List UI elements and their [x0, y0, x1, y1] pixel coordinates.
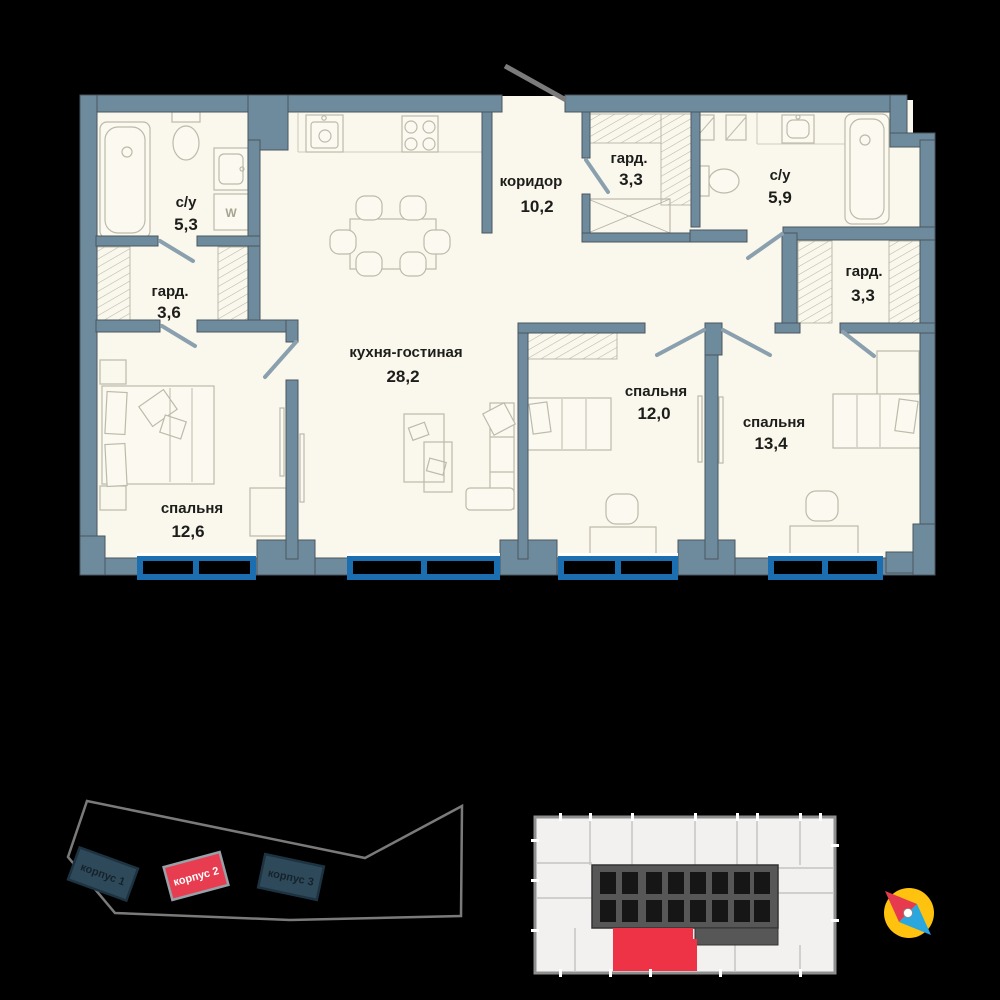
compass-icon	[884, 888, 934, 938]
room-area-kitchen-living: 28,2	[386, 367, 419, 386]
building-korpus-1: корпус 1	[68, 847, 138, 900]
building-korpus-2-highlighted: корпус 2	[164, 852, 229, 900]
site-plan: корпус 1 корпус 2 корпус 3	[68, 801, 462, 920]
floor-plan-canvas: W	[0, 0, 1000, 1000]
sliding-panel	[719, 397, 723, 463]
key-plan-highlighted-apartment	[613, 928, 697, 971]
room-area-wardrobe-2: 3,3	[619, 170, 643, 189]
toilet	[172, 112, 200, 160]
bed-single	[833, 394, 921, 448]
window	[137, 553, 256, 580]
apartment-plan-page: W	[0, 0, 1000, 1000]
room-label-bedroom-3: спальня	[743, 414, 805, 431]
building-korpus-3: корпус 3	[258, 854, 324, 900]
stove	[402, 116, 438, 152]
room-area-bedroom-1: 12,6	[171, 522, 204, 541]
bathtub	[845, 114, 889, 224]
sliding-panel	[698, 396, 702, 462]
floor-plan: W	[80, 66, 935, 580]
room-label-bathroom-1: с/у	[176, 194, 198, 211]
washer-label: W	[225, 206, 237, 220]
sink	[782, 115, 814, 143]
room-label-bedroom-1: спальня	[161, 500, 223, 517]
room-area-bathroom-2: 5,9	[768, 188, 792, 207]
room-label-bedroom-2: спальня	[625, 383, 687, 400]
sliding-panel	[300, 434, 304, 502]
kitchen-sink	[306, 115, 343, 152]
room-label-wardrobe-1: гард.	[151, 283, 188, 300]
window	[558, 553, 678, 580]
room-label-wardrobe-3: гард.	[845, 263, 882, 280]
bed-single	[527, 398, 611, 450]
chair	[606, 494, 638, 524]
window	[347, 553, 500, 580]
room-area-wardrobe-1: 3,6	[157, 303, 181, 322]
room-area-corridor: 10,2	[520, 197, 553, 216]
sink	[214, 148, 248, 190]
chair	[806, 491, 838, 521]
sliding-panel	[280, 408, 284, 476]
room-area-bathroom-1: 5,3	[174, 215, 198, 234]
room-label-corridor: коридор	[500, 173, 563, 190]
window	[768, 553, 883, 580]
room-area-bedroom-2: 12,0	[637, 404, 670, 423]
bathtub	[100, 122, 150, 238]
room-label-kitchen-living: кухня-гостиная	[349, 344, 462, 361]
washing-machine: W	[214, 194, 248, 230]
room-area-wardrobe-3: 3,3	[851, 286, 875, 305]
entrance-door-swing	[505, 66, 566, 100]
room-label-bathroom-2: с/у	[770, 167, 792, 184]
room-label-wardrobe-2: гард.	[610, 150, 647, 167]
compass-pivot	[904, 909, 913, 918]
room-area-bedroom-3: 13,4	[754, 434, 788, 453]
key-plan	[531, 813, 839, 977]
